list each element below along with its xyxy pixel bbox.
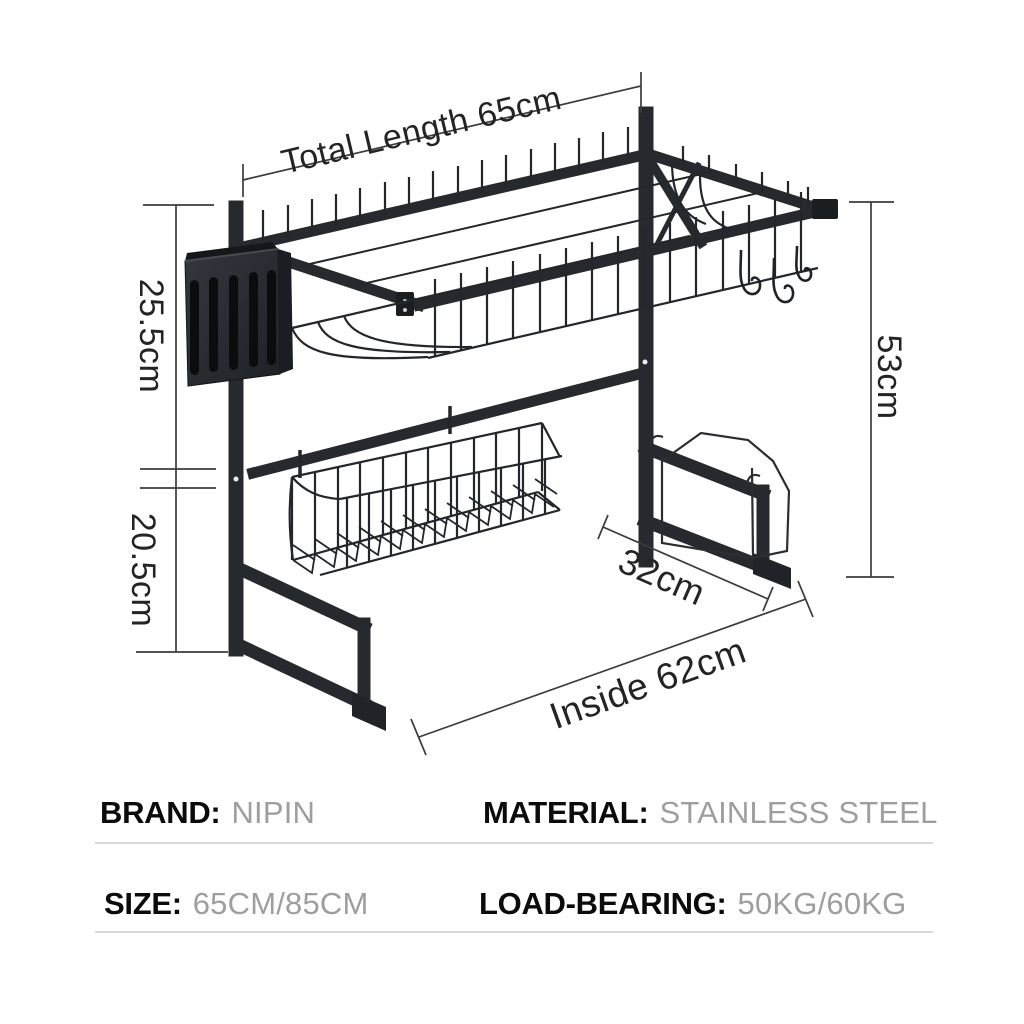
dim-line-inside-length (411, 581, 813, 755)
dimension-total-length: Total Length 65cm (278, 79, 565, 182)
spec-size: SIZE:65CM/85CM (104, 886, 369, 922)
front-right-end-cap (812, 199, 838, 219)
rack-illustration: Total Length 65cm 25.5cm 20.5cm 53cm 32c… (0, 0, 1024, 1024)
divider-line-1 (95, 842, 933, 844)
spec-material: MATERIAL:STAINLESS STEEL (483, 795, 938, 831)
spec-label-brand: BRAND: (100, 795, 220, 830)
lower-basket-mesh-2 (293, 479, 557, 560)
basket-left-curves (292, 316, 472, 358)
spec-label-size: SIZE: (104, 886, 182, 921)
spec-brand: BRAND:NIPIN (100, 795, 315, 831)
right-foot-block (753, 553, 791, 589)
spec-load-bearing: LOAD-BEARING:50KG/60KG (479, 886, 907, 922)
rack-frame (236, 114, 823, 704)
s-hook-3 (796, 246, 811, 281)
spec-value-brand: NIPIN (231, 795, 315, 830)
dimension-upper-height: 25.5cm (132, 279, 170, 394)
middle-rail (253, 373, 643, 473)
spec-label-material: MATERIAL: (483, 795, 648, 830)
cutlery-box (185, 242, 293, 386)
lower-basket-mesh-1 (293, 494, 554, 573)
dimension-lower-height: 20.5cm (124, 513, 162, 628)
product-dimension-diagram: Total Length 65cm 25.5cm 20.5cm 53cm 32c… (0, 0, 1024, 1024)
cutlery-box-side (278, 249, 293, 374)
dimension-depth: 32cm (613, 540, 712, 614)
dimension-overall-height: 53cm (870, 334, 908, 419)
left-foot-frame (241, 570, 364, 704)
spec-label-load-bearing: LOAD-BEARING: (479, 886, 727, 921)
board-holder-edge (752, 468, 753, 558)
s-hook-2 (774, 258, 794, 302)
spec-value-material: STAINLESS STEEL (659, 795, 937, 830)
lower-basket-front-wires (347, 459, 545, 568)
s-hook-1 (741, 250, 761, 294)
dimension-inside-length: Inside 62cm (544, 630, 751, 737)
right-leg-hole (643, 360, 648, 365)
front-rail-wires (435, 192, 801, 356)
divider-line-2 (95, 931, 933, 933)
spec-value-load-bearing: 50KG/60KG (738, 886, 907, 921)
left-leg-hole (234, 477, 239, 482)
spec-value-size: 65CM/85CM (193, 886, 369, 921)
